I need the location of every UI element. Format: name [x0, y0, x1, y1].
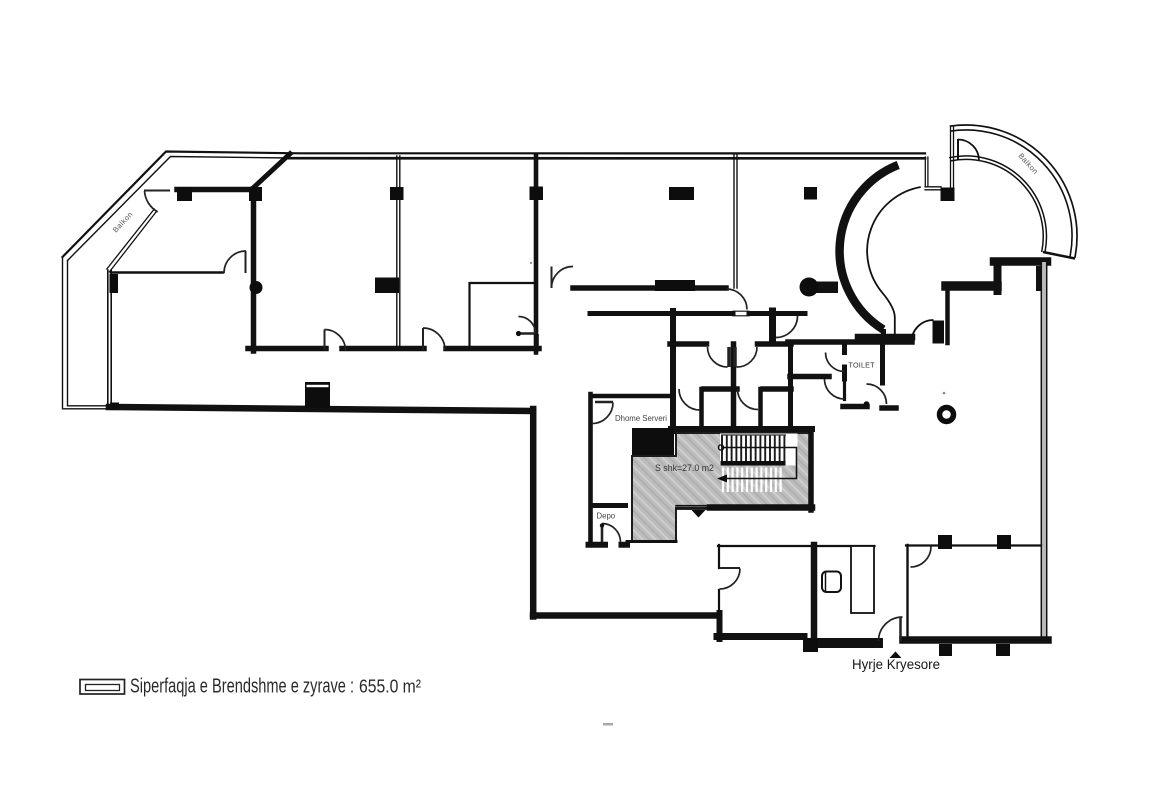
svg-text:Siperfaqja e Brendshme e zyrav: Siperfaqja e Brendshme e zyrave :	[130, 676, 354, 698]
svg-text:Depo: Depo	[597, 512, 616, 521]
svg-text:Dhome Serveri: Dhome Serveri	[615, 414, 667, 423]
svg-text:TOILET: TOILET	[849, 361, 876, 370]
svg-text:S shk=27.0 m2: S shk=27.0 m2	[655, 463, 714, 473]
svg-text:Hyrje Kryesore: Hyrje Kryesore	[852, 657, 940, 672]
svg-text:655.0 m²: 655.0 m²	[359, 676, 421, 697]
